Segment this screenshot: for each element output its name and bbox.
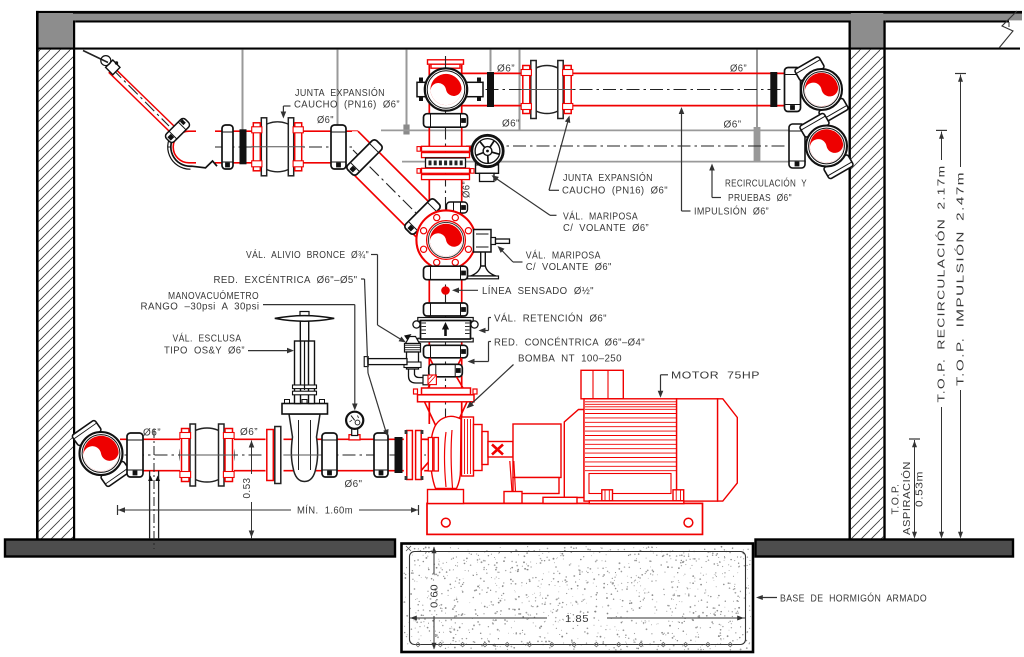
svg-text:MANOVACUÓMETRO: MANOVACUÓMETRO	[168, 289, 259, 302]
svg-text:Ø6”: Ø6”	[724, 120, 742, 131]
svg-text:VÁL. RETENCIÓN Ø6": VÁL. RETENCIÓN Ø6"	[494, 312, 607, 325]
svg-text:0.53m: 0.53m	[915, 471, 926, 507]
svg-text:Ø6”: Ø6”	[462, 181, 473, 198]
svg-text:0.53: 0.53	[242, 478, 253, 499]
svg-text:T.O.P. RECIRCULACIÓN 2.17m: T.O.P. RECIRCULACIÓN 2.17m	[937, 165, 948, 403]
svg-text:1.85: 1.85	[565, 614, 589, 625]
svg-text:VÁL. ESCLUSA: VÁL. ESCLUSA	[173, 332, 242, 345]
svg-text:RECIRCULACIÓN Y: RECIRCULACIÓN Y	[725, 177, 807, 190]
svg-text:RANGO –30psi A 30psi: RANGO –30psi A 30psi	[141, 302, 260, 313]
svg-text:Ø6”: Ø6”	[143, 428, 161, 439]
svg-text:BOMBA NT 100–250: BOMBA NT 100–250	[518, 354, 622, 365]
svg-text:VÁL. ALIVIO BRONCE Ø¾": VÁL. ALIVIO BRONCE Ø¾"	[246, 248, 369, 261]
svg-text:C/ VOLANTE Ø6”: C/ VOLANTE Ø6”	[563, 223, 649, 234]
svg-text:0.60: 0.60	[430, 584, 441, 608]
svg-text:RED. CONCÉNTRICA Ø6"–Ø4": RED. CONCÉNTRICA Ø6"–Ø4"	[494, 336, 645, 349]
svg-text:Ø6": Ø6"	[502, 119, 520, 130]
svg-text:VÁL. MARIPOSA: VÁL. MARIPOSA	[563, 210, 638, 223]
svg-text:CAUCHO (PN16) Ø6”: CAUCHO (PN16) Ø6”	[294, 100, 400, 111]
svg-text:T.O.P. IMPULSIÓN 2.47m: T.O.P. IMPULSIÓN 2.47m	[956, 171, 967, 386]
svg-text:JUNTA EXPANSIÓN: JUNTA EXPANSIÓN	[295, 86, 385, 99]
svg-text:PRUEBAS Ø6": PRUEBAS Ø6"	[728, 193, 792, 204]
svg-text:LÍNEA SENSADO Ø½": LÍNEA SENSADO Ø½"	[482, 284, 594, 297]
svg-text:Ø6”: Ø6”	[730, 64, 747, 75]
svg-text:CAUCHO (PN16) Ø6": CAUCHO (PN16) Ø6"	[562, 186, 668, 197]
svg-text:C/ VOLANTE Ø6": C/ VOLANTE Ø6"	[526, 262, 612, 273]
svg-text:Ø6”: Ø6”	[240, 427, 258, 438]
svg-text:BASE DE HORMIGÓN ARMADO: BASE DE HORMIGÓN ARMADO	[780, 592, 927, 605]
svg-text:T.O.P.: T.O.P.	[891, 484, 902, 515]
svg-text:MÍN. 1.60m: MÍN. 1.60m	[297, 504, 353, 517]
svg-text:TIPO OS&Y Ø6”: TIPO OS&Y Ø6”	[164, 346, 245, 357]
svg-text:VÁL. MARIPOSA: VÁL. MARIPOSA	[526, 249, 601, 262]
svg-text:ASPIRACIÓN: ASPIRACIÓN	[902, 461, 913, 535]
svg-text:Ø6": Ø6"	[317, 115, 334, 126]
svg-text:Ø6”: Ø6”	[497, 64, 515, 75]
svg-text:JUNTA EXPANSIÓN: JUNTA EXPANSIÓN	[563, 171, 653, 184]
svg-text:RED. EXCÉNTRICA Ø6"–Ø5": RED. EXCÉNTRICA Ø6"–Ø5"	[214, 273, 358, 286]
svg-text:Ø6": Ø6"	[345, 479, 363, 490]
svg-text:IMPULSIÓN Ø6”: IMPULSIÓN Ø6”	[694, 204, 769, 217]
svg-text:MOTOR 75HP: MOTOR 75HP	[671, 371, 760, 382]
